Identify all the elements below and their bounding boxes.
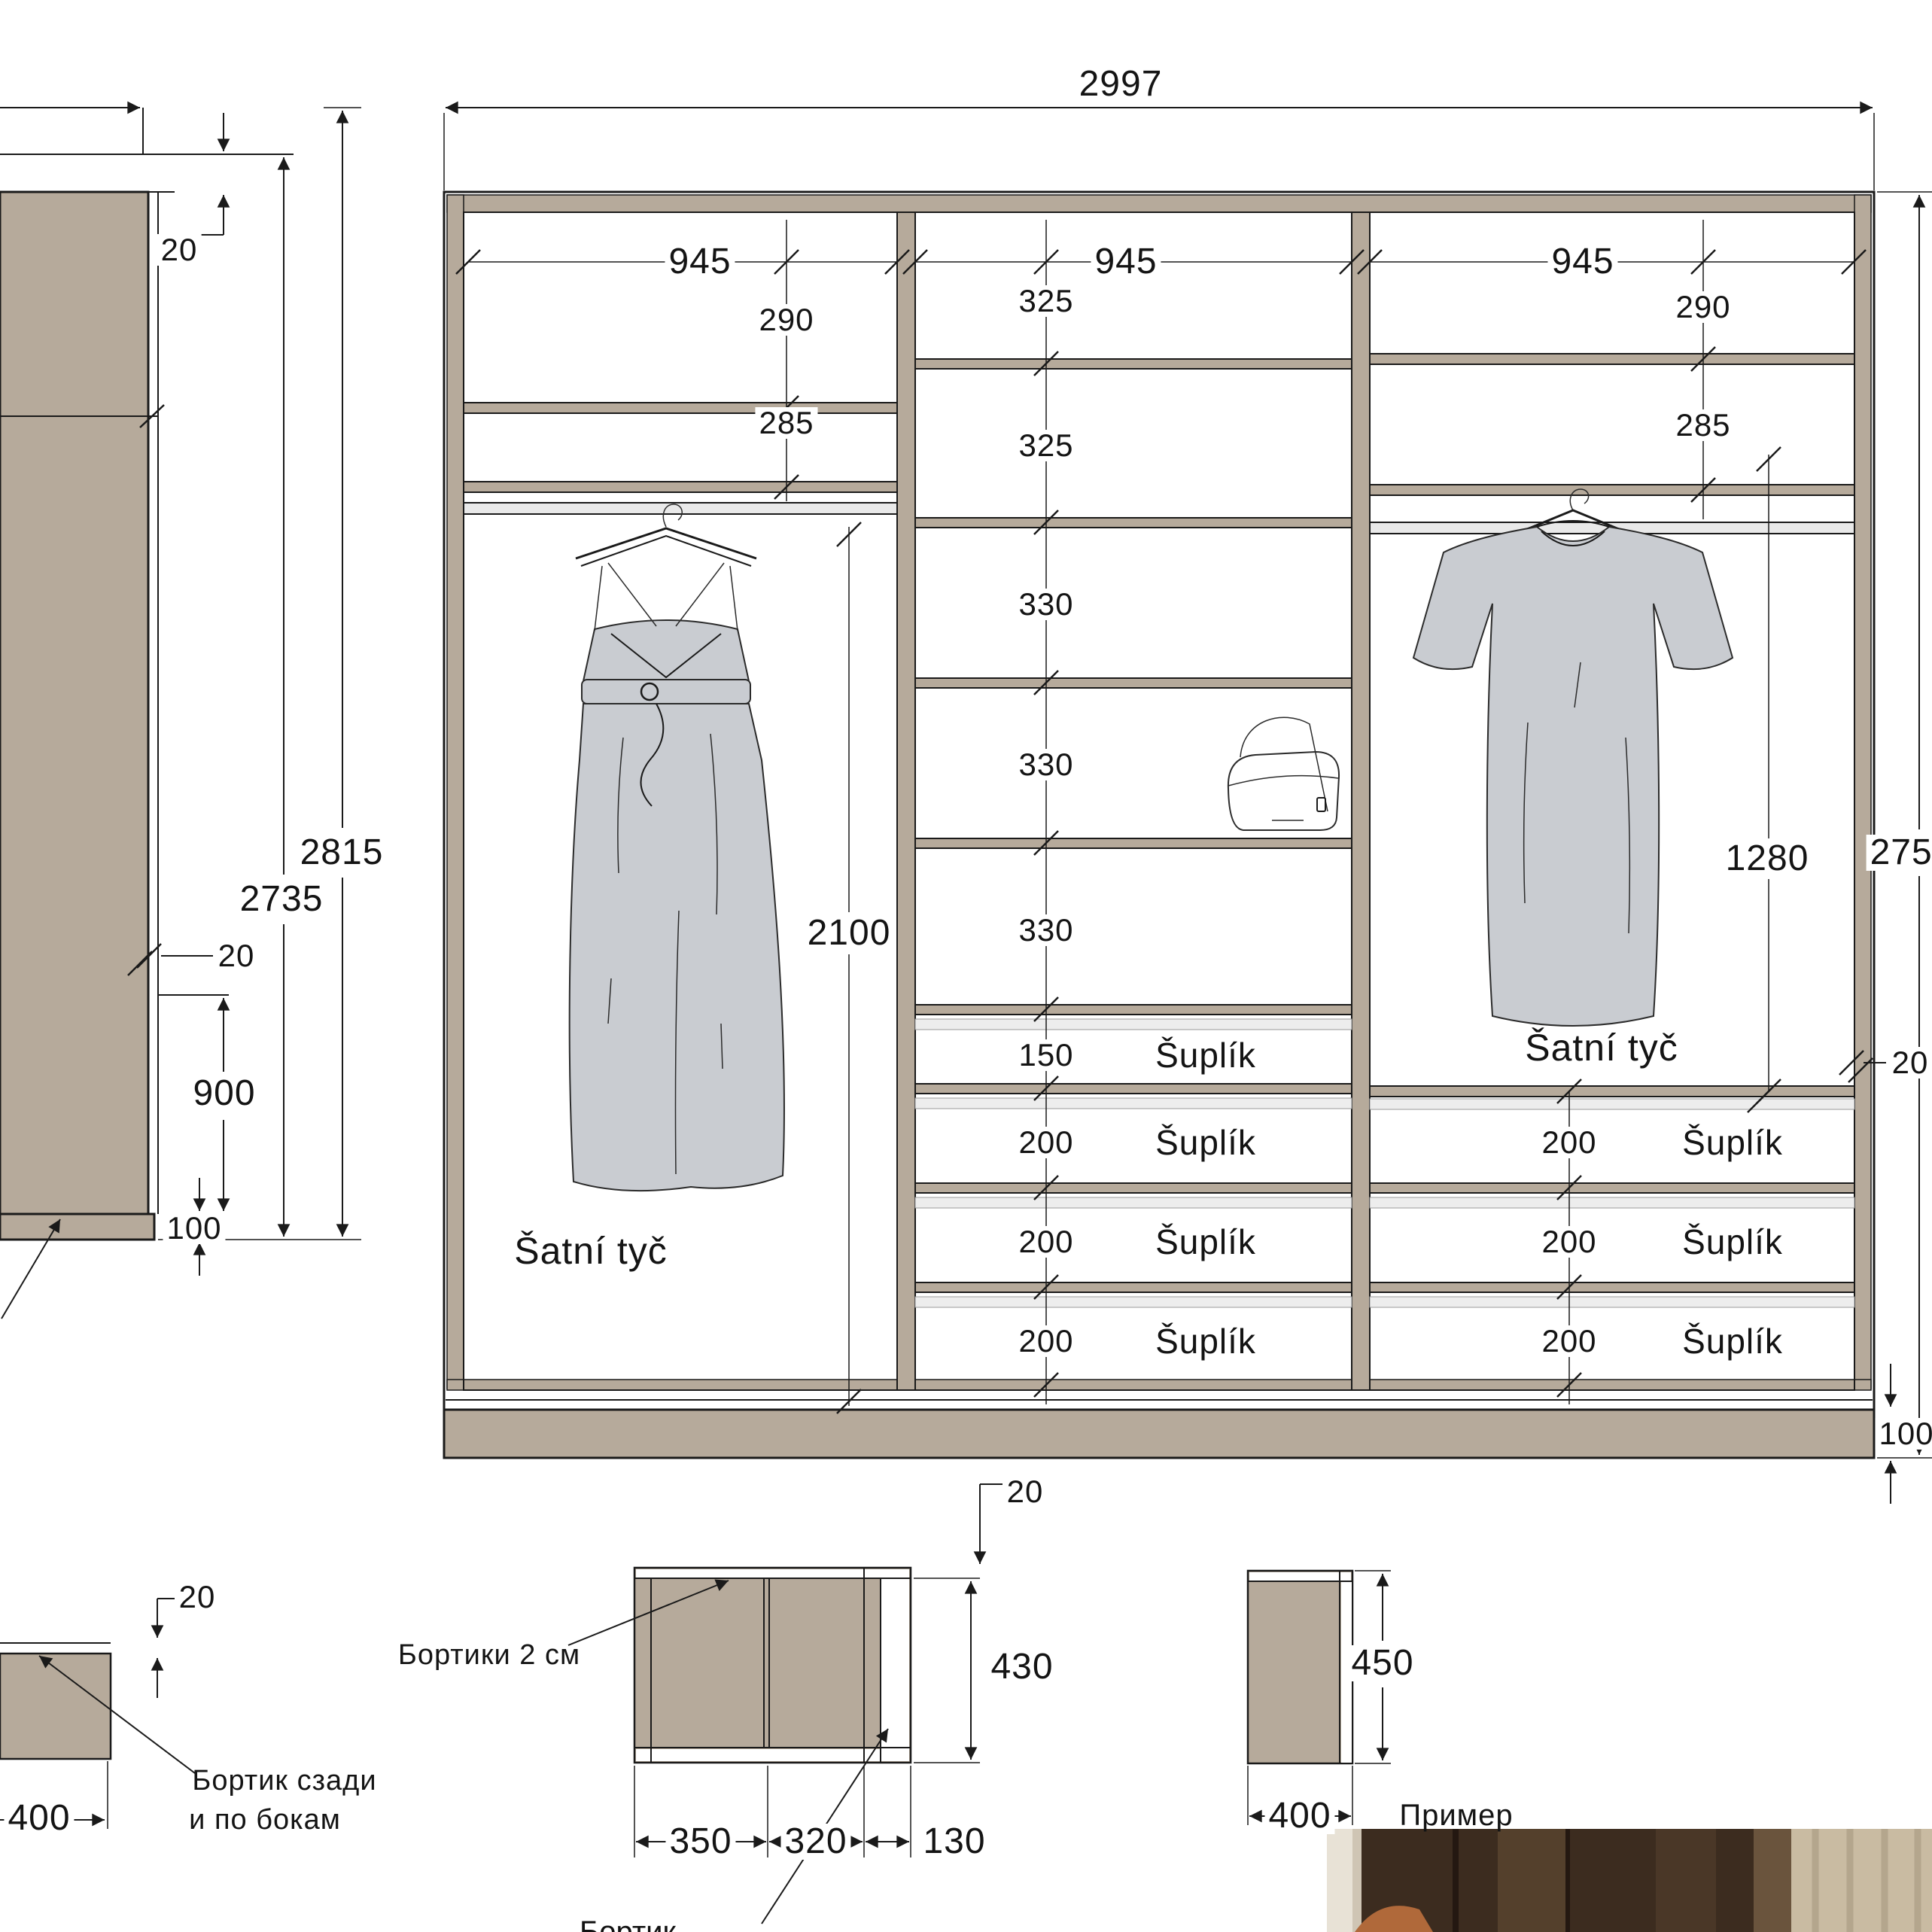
dim-detail-c-width: 400 bbox=[1264, 1798, 1334, 1834]
dim-drawer-200: 200 bbox=[1015, 1127, 1077, 1158]
dim-detail-b-height: 430 bbox=[987, 1649, 1057, 1685]
photo-caption: Пример bbox=[1395, 1800, 1517, 1830]
dim-side-900: 900 bbox=[189, 1076, 259, 1112]
dim-col1-row1: 290 bbox=[755, 304, 817, 336]
dim-col2-row2: 325 bbox=[1015, 430, 1077, 461]
dim-total-width: 2997 bbox=[1076, 66, 1167, 102]
dim-detail-b-w1: 350 bbox=[665, 1824, 735, 1860]
dim-col2-width: 945 bbox=[1091, 244, 1161, 280]
dim-col1-width: 945 bbox=[665, 244, 735, 280]
drawer-label: Šuplík bbox=[1152, 1324, 1260, 1358]
dim-col2-row3: 330 bbox=[1015, 589, 1077, 620]
dim-col2-row4: 330 bbox=[1015, 749, 1077, 780]
drawer-label: Šuplík bbox=[1678, 1225, 1787, 1259]
detail-base-right bbox=[1248, 1571, 1391, 1825]
handbag-icon bbox=[1228, 717, 1339, 830]
dim-detail-b-w2: 320 bbox=[780, 1824, 850, 1860]
dim-drawer-200: 200 bbox=[1015, 1325, 1077, 1357]
dim-detail-b-w3: 130 bbox=[919, 1824, 989, 1860]
dim-side-plinth: 100 bbox=[163, 1212, 225, 1244]
dim-side-top-thickness: 20 bbox=[157, 234, 202, 266]
dim-right-plinth: 100 bbox=[1875, 1418, 1932, 1450]
dim-detail-a-lip: 20 bbox=[175, 1581, 220, 1613]
dim-rod-height-left: 2100 bbox=[804, 915, 895, 951]
blueprint-canvas: 2997 945 945 945 290 285 290 285 325 325… bbox=[0, 0, 1932, 1932]
dim-detail-c-height: 450 bbox=[1347, 1645, 1417, 1681]
drawer-label: Šuplík bbox=[1678, 1125, 1787, 1160]
dim-drawer-200: 200 bbox=[1538, 1226, 1600, 1258]
note-bortik-line1: Бортик сзади bbox=[188, 1766, 380, 1795]
drawer-label: Šuplík bbox=[1152, 1225, 1260, 1259]
side-view bbox=[0, 108, 361, 1319]
drawer-label: Šuplík bbox=[1152, 1125, 1260, 1160]
dim-detail-b-lip: 20 bbox=[1003, 1476, 1048, 1508]
tshirt-illustration bbox=[1413, 489, 1733, 1026]
dim-drawer-150: 150 bbox=[1015, 1039, 1077, 1071]
dim-side-inner-height: 2735 bbox=[236, 881, 327, 917]
dim-col3-row2: 285 bbox=[1672, 409, 1734, 441]
dim-drawer-200: 200 bbox=[1538, 1325, 1600, 1357]
dim-col2-row5: 330 bbox=[1015, 914, 1077, 946]
dim-detail-a-depth: 400 bbox=[4, 1800, 74, 1836]
rod-label-left: Šatní tyč bbox=[510, 1232, 671, 1270]
note-bortik-line2: и по бокам bbox=[185, 1806, 345, 1834]
dim-right-height: 2755 bbox=[1867, 835, 1932, 871]
note-bortiki-2sm: Бортики 2 см bbox=[394, 1641, 584, 1669]
clipped-note: Бортик bbox=[580, 1915, 715, 1932]
photo-sample bbox=[1327, 1829, 1932, 1932]
dim-col3-width: 945 bbox=[1547, 244, 1617, 280]
drawer-label: Šuplík bbox=[1152, 1038, 1260, 1072]
dress-illustration bbox=[570, 504, 784, 1191]
dim-col3-row1: 290 bbox=[1672, 291, 1734, 323]
dim-rod-height-right: 1280 bbox=[1722, 841, 1813, 877]
dim-col1-row2: 285 bbox=[755, 407, 817, 439]
dim-drawer-200: 200 bbox=[1015, 1226, 1077, 1258]
drawer-label: Šuplík bbox=[1678, 1324, 1787, 1358]
dim-side-mid-thickness: 20 bbox=[214, 940, 259, 972]
dim-drawer-200: 200 bbox=[1538, 1127, 1600, 1158]
dim-right-thickness: 20 bbox=[1888, 1047, 1932, 1079]
dim-side-total-height: 2815 bbox=[297, 835, 388, 871]
blueprint-linework bbox=[0, 0, 1932, 1932]
dim-col2-row1: 325 bbox=[1015, 285, 1077, 317]
detail-base-side bbox=[0, 1599, 195, 1829]
rod-label-right: Šatní tyč bbox=[1521, 1029, 1682, 1066]
